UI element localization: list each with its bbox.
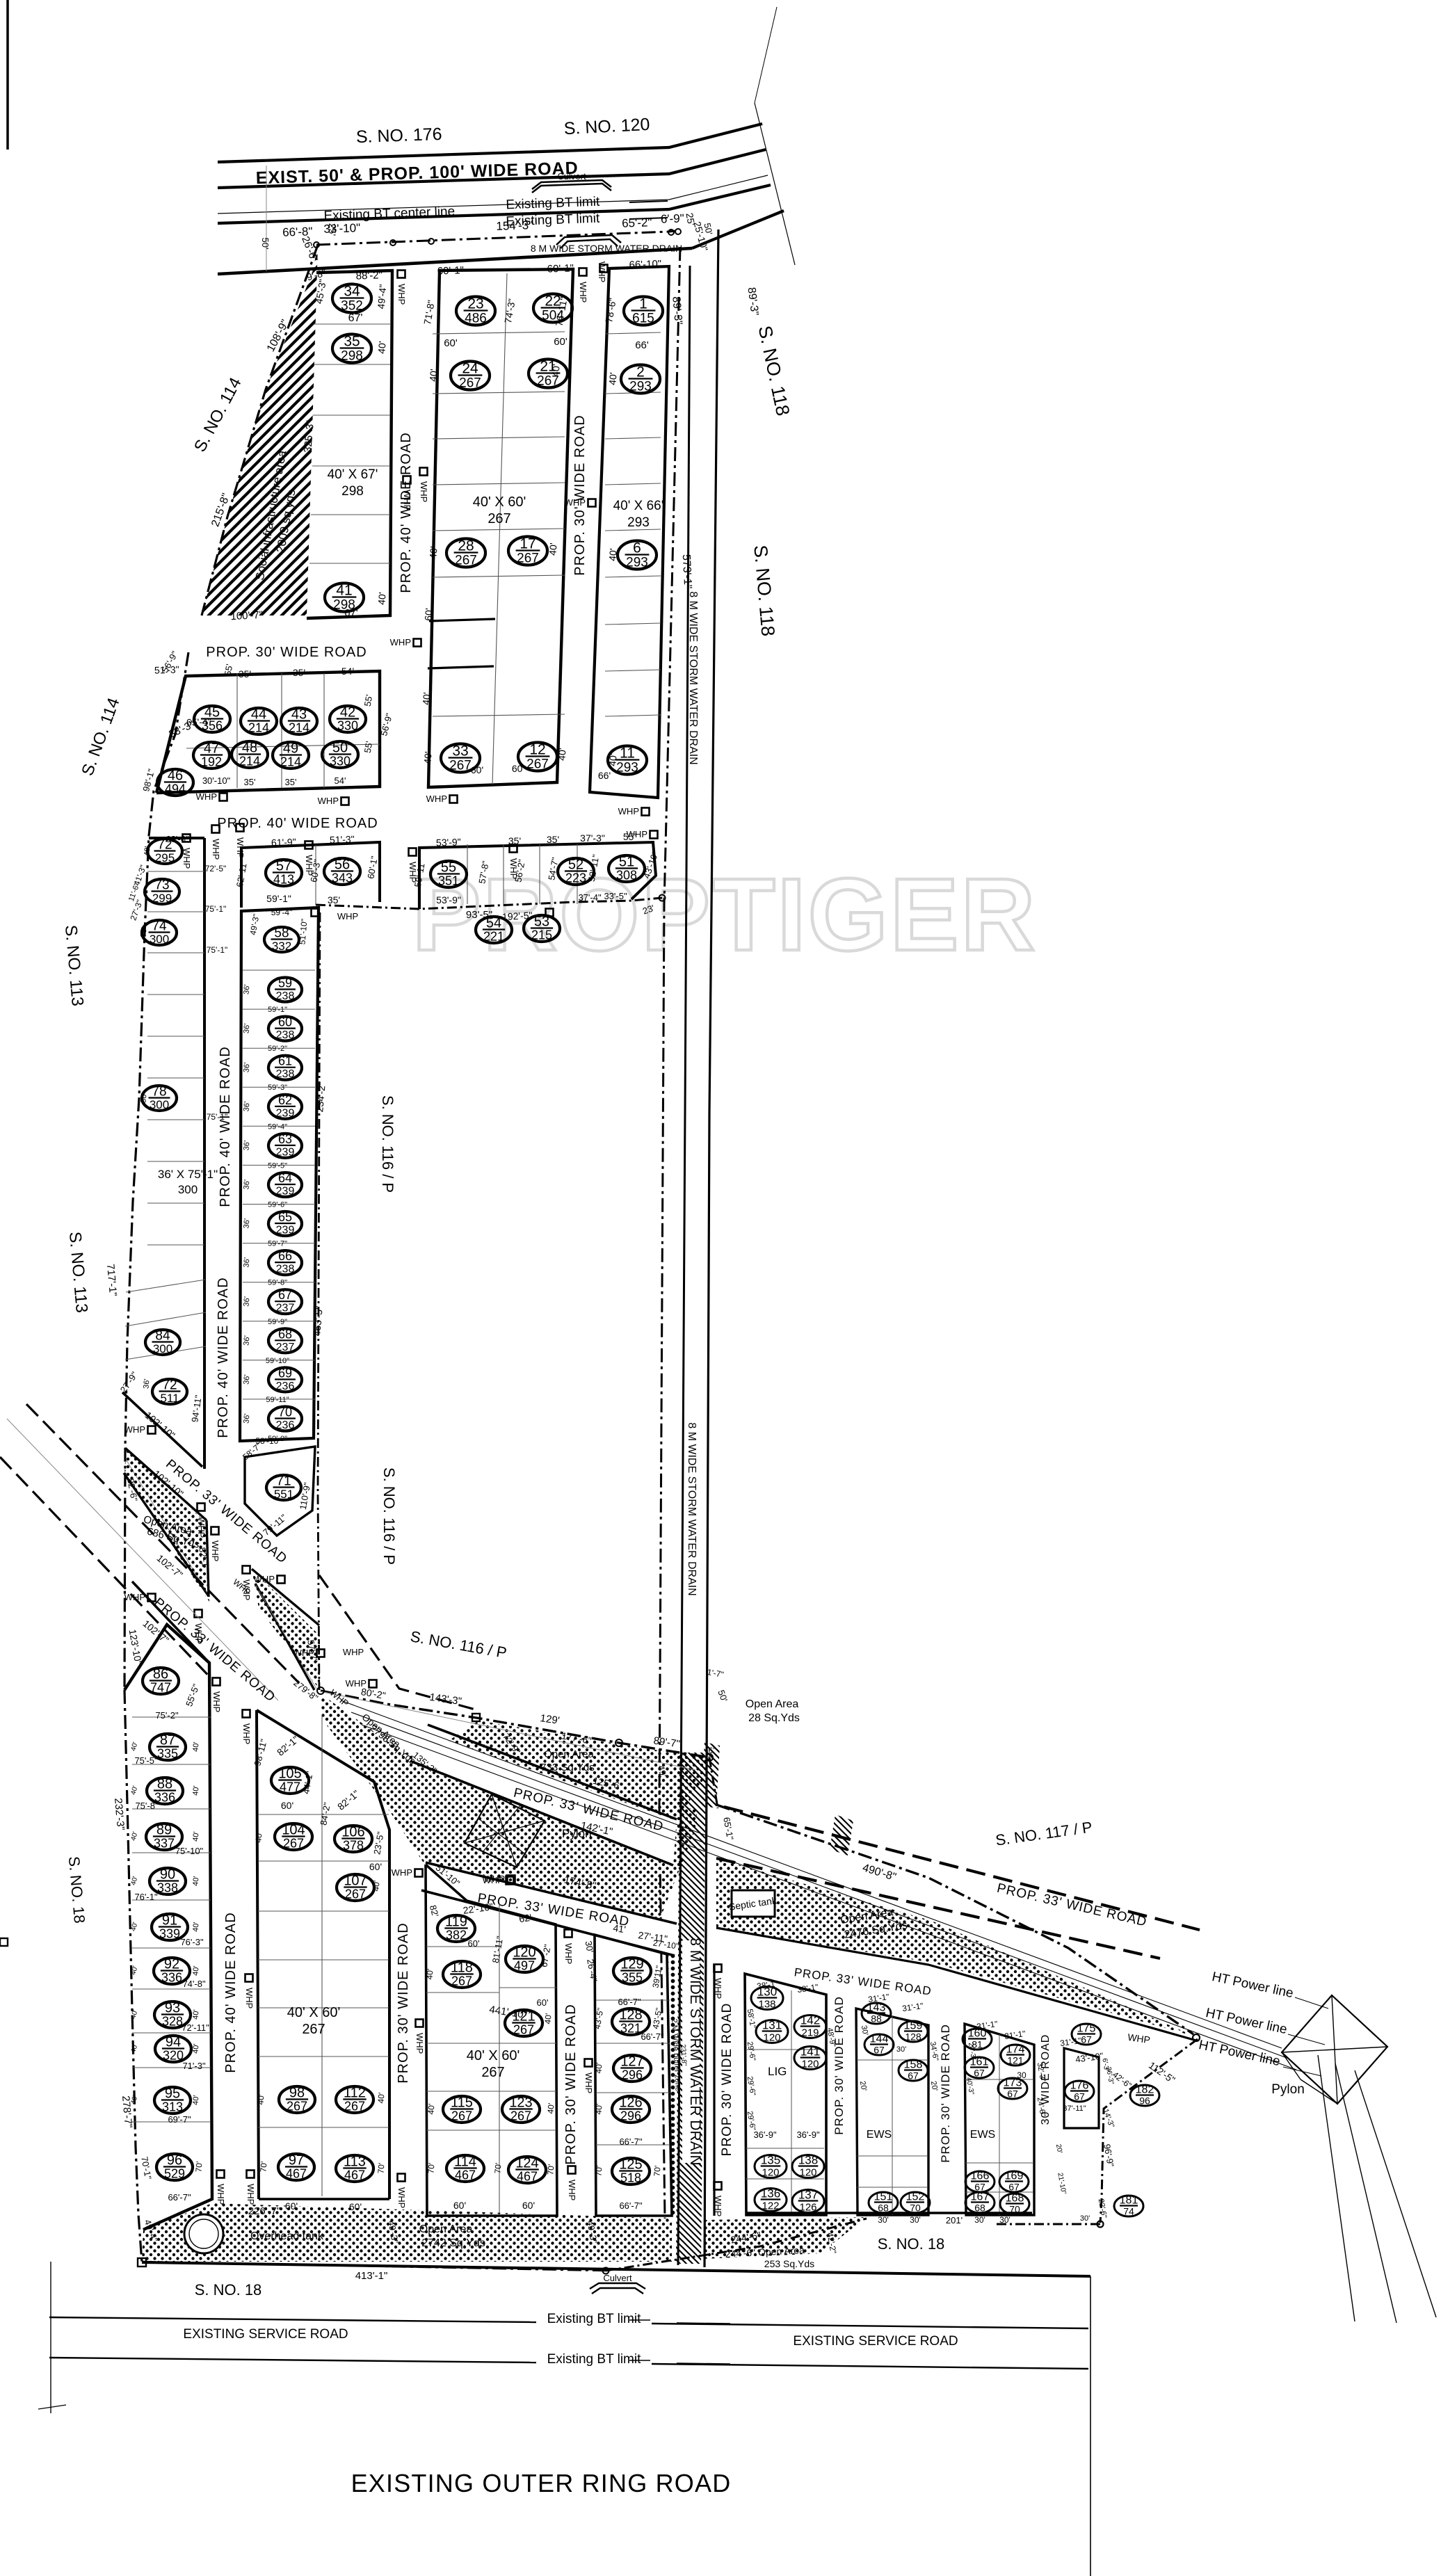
svg-text:343: 343	[332, 871, 353, 885]
svg-text:61'-9": 61'-9"	[271, 836, 296, 848]
svg-text:S. NO. 116 / P: S. NO. 116 / P	[379, 1095, 396, 1193]
svg-text:EXISTING SERVICE ROAD: EXISTING SERVICE ROAD	[183, 2327, 348, 2342]
svg-text:2: 2	[636, 364, 645, 380]
svg-text:60'-1": 60'-1"	[547, 262, 574, 275]
svg-text:123: 123	[509, 2095, 532, 2111]
svg-text:144: 144	[870, 2034, 889, 2045]
svg-text:378: 378	[343, 1839, 364, 1853]
svg-text:70': 70'	[593, 2165, 604, 2177]
svg-text:74: 74	[152, 919, 167, 934]
svg-text:40': 40'	[191, 1831, 200, 1842]
svg-text:336: 336	[161, 1971, 182, 1985]
svg-text:36': 36'	[242, 1257, 251, 1268]
svg-text:192: 192	[201, 755, 222, 769]
svg-text:84: 84	[155, 1329, 170, 1344]
svg-text:43: 43	[291, 707, 307, 723]
svg-text:120: 120	[513, 1945, 536, 1961]
svg-text:337: 337	[154, 1837, 175, 1851]
svg-text:182: 182	[1136, 2084, 1154, 2096]
svg-text:35': 35'	[239, 668, 251, 679]
svg-text:223: 223	[565, 871, 586, 885]
svg-text:55': 55'	[362, 694, 375, 707]
svg-text:192'-5": 192'-5"	[502, 910, 533, 922]
svg-text:30'-10": 30'-10"	[202, 775, 231, 786]
svg-text:40' X 60': 40' X 60'	[473, 494, 526, 510]
svg-text:40' X 66': 40' X 66'	[613, 499, 664, 513]
svg-text:51: 51	[619, 855, 634, 870]
svg-text:Culvert: Culvert	[603, 2273, 632, 2283]
svg-text:55': 55'	[223, 663, 235, 677]
svg-text:8 M WIDE STORM WATER DRAIN: 8 M WIDE STORM WATER DRAIN	[686, 1422, 698, 1595]
svg-text:267: 267	[526, 757, 549, 771]
svg-text:74: 74	[1123, 2206, 1134, 2217]
svg-text:50': 50'	[260, 238, 271, 250]
svg-text:36': 36'	[242, 1296, 251, 1307]
svg-text:Open Area: Open Area	[544, 1748, 594, 1760]
svg-text:267: 267	[451, 1974, 472, 1988]
svg-text:65: 65	[278, 1210, 292, 1224]
svg-text:71: 71	[276, 1474, 291, 1489]
svg-text:20': 20'	[1054, 2143, 1063, 2154]
svg-text:321: 321	[620, 2022, 641, 2036]
svg-text:60': 60'	[422, 608, 435, 622]
svg-text:168: 168	[1006, 2193, 1024, 2205]
svg-text:67: 67	[908, 2070, 919, 2082]
svg-text:239: 239	[276, 1225, 295, 1237]
svg-text:30': 30'	[896, 2045, 906, 2054]
svg-text:298: 298	[341, 348, 363, 363]
svg-text:159: 159	[904, 2020, 923, 2032]
svg-text:60': 60'	[444, 337, 458, 349]
svg-text:PROP. 40' WIDE ROAD: PROP. 40' WIDE ROAD	[223, 1912, 239, 2072]
svg-text:119: 119	[445, 1915, 467, 1930]
svg-text:118: 118	[451, 1961, 473, 1976]
svg-text:267: 267	[481, 2065, 504, 2080]
svg-text:WHP: WHP	[426, 794, 447, 804]
svg-text:58: 58	[274, 926, 289, 941]
svg-text:87: 87	[160, 1733, 175, 1748]
svg-text:573'-1": 573'-1"	[680, 554, 694, 589]
svg-text:236: 236	[276, 1380, 295, 1392]
svg-text:50: 50	[332, 741, 348, 756]
svg-text:236: 236	[276, 1419, 295, 1431]
svg-text:66': 66'	[635, 339, 649, 351]
svg-text:75'-5": 75'-5"	[134, 1755, 158, 1766]
svg-text:518: 518	[620, 2171, 641, 2185]
svg-text:33'-5": 33'-5"	[604, 891, 627, 901]
svg-text:267: 267	[510, 2109, 531, 2123]
svg-text:221: 221	[483, 930, 504, 944]
svg-text:59'-4": 59'-4"	[268, 1122, 287, 1131]
svg-text:330: 330	[337, 719, 358, 733]
svg-text:8 M WIDE STORM WATER DRAIN: 8 M WIDE STORM WATER DRAIN	[687, 1938, 703, 2165]
svg-text:40': 40'	[426, 2103, 436, 2115]
svg-text:238: 238	[276, 1068, 295, 1080]
svg-text:PROP. 30' WIDE ROAD: PROP. 30' WIDE ROAD	[396, 1922, 411, 2083]
svg-text:126: 126	[799, 2201, 816, 2213]
svg-text:37'-11": 37'-11"	[1063, 2104, 1086, 2113]
svg-text:142: 142	[800, 2014, 820, 2027]
svg-text:176: 176	[1070, 2080, 1089, 2092]
svg-text:382: 382	[446, 1929, 467, 1942]
svg-text:55: 55	[441, 860, 456, 876]
svg-text:497: 497	[514, 1959, 535, 1973]
svg-text:40': 40'	[191, 2009, 200, 2020]
svg-text:328: 328	[162, 2015, 183, 2029]
svg-text:67': 67'	[344, 607, 358, 619]
svg-text:60'-6": 60'-6"	[166, 834, 189, 844]
svg-text:313: 313	[162, 2100, 183, 2114]
svg-text:30': 30'	[1080, 2214, 1090, 2223]
svg-text:36': 36'	[139, 927, 148, 937]
svg-text:75'-10": 75'-10"	[175, 1846, 204, 1856]
svg-text:59'-7": 59'-7"	[268, 1240, 287, 1248]
svg-text:40': 40'	[143, 846, 152, 856]
svg-text:70: 70	[910, 2203, 921, 2214]
svg-text:201': 201'	[946, 2215, 963, 2225]
svg-text:174: 174	[1006, 2044, 1025, 2056]
svg-text:70': 70'	[376, 2162, 386, 2174]
svg-text:253 Sq.Yds: 253 Sq.Yds	[764, 2258, 814, 2269]
svg-text:60': 60'	[471, 764, 483, 775]
svg-text:53'-9": 53'-9"	[436, 894, 461, 905]
svg-text:308: 308	[616, 869, 637, 883]
svg-text:EXISTING OUTER RING ROAD: EXISTING OUTER RING ROAD	[351, 2469, 732, 2497]
svg-text:40': 40'	[191, 1785, 200, 1796]
svg-text:35: 35	[344, 334, 360, 350]
svg-text:95: 95	[165, 2086, 180, 2102]
svg-text:40': 40'	[420, 692, 433, 706]
svg-text:40': 40'	[191, 1965, 200, 1976]
svg-text:33: 33	[452, 743, 468, 759]
svg-text:131: 131	[762, 2019, 782, 2032]
svg-text:295: 295	[155, 851, 175, 864]
svg-text:40': 40'	[191, 2043, 200, 2054]
svg-text:135: 135	[761, 2154, 780, 2167]
svg-text:Open Area: Open Area	[419, 2223, 473, 2235]
svg-text:70': 70'	[492, 2162, 503, 2174]
svg-text:40': 40'	[253, 1831, 264, 1843]
svg-text:WHP: WHP	[396, 2187, 407, 2208]
svg-text:69'-7": 69'-7"	[168, 2114, 191, 2125]
svg-text:36': 36'	[242, 1101, 251, 1111]
svg-text:511: 511	[160, 1392, 179, 1405]
svg-text:6'-9": 6'-9"	[661, 211, 685, 225]
svg-text:74'-8": 74'-8"	[182, 1979, 206, 1989]
svg-text:40': 40'	[593, 2062, 604, 2074]
svg-text:330: 330	[330, 755, 351, 768]
svg-text:WHP: WHP	[293, 1648, 314, 1658]
svg-text:WHP: WHP	[211, 839, 221, 860]
svg-text:298: 298	[341, 484, 364, 499]
svg-text:S. NO. 176: S. NO. 176	[355, 124, 442, 147]
svg-text:59'-6": 59'-6"	[268, 1201, 287, 1209]
svg-text:60': 60'	[522, 2200, 535, 2211]
svg-text:219: 219	[801, 2027, 819, 2038]
svg-text:36'-9": 36'-9"	[753, 2130, 777, 2140]
svg-text:WHP: WHP	[210, 1540, 220, 1561]
svg-text:65'-2": 65'-2"	[622, 216, 652, 230]
svg-text:296: 296	[620, 2109, 641, 2123]
svg-text:59'-1": 59'-1"	[266, 893, 291, 904]
svg-text:30': 30'	[860, 2024, 869, 2036]
svg-text:WHP: WHP	[211, 1691, 222, 1712]
svg-text:66: 66	[278, 1249, 292, 1263]
svg-text:66'-7": 66'-7"	[168, 2192, 191, 2203]
svg-text:40': 40'	[191, 1922, 200, 1932]
svg-text:40' X 60': 40' X 60'	[467, 2048, 520, 2063]
svg-text:60'-1": 60'-1"	[437, 264, 464, 277]
svg-text:296: 296	[622, 2068, 643, 2082]
svg-text:67': 67'	[348, 312, 363, 324]
svg-text:293: 293	[616, 760, 638, 775]
svg-text:76'-1": 76'-1"	[134, 1892, 158, 1902]
svg-text:237: 237	[276, 1342, 295, 1353]
svg-text:PROP. 30' WIDE ROAD: PROP. 30' WIDE ROAD	[832, 1996, 846, 2135]
svg-text:70': 70'	[545, 2164, 556, 2175]
svg-text:Open Area: Open Area	[746, 1698, 799, 1710]
svg-text:47: 47	[204, 741, 219, 757]
svg-text:64: 64	[278, 1171, 292, 1185]
svg-text:300: 300	[150, 933, 169, 946]
svg-text:PROP. 30' WIDE ROAD: PROP. 30' WIDE ROAD	[939, 2024, 952, 2163]
svg-text:267: 267	[488, 511, 510, 526]
svg-text:11: 11	[620, 746, 635, 762]
svg-text:40': 40'	[427, 369, 440, 383]
svg-text:114: 114	[454, 2155, 476, 2170]
svg-text:72'-5": 72'-5"	[205, 864, 227, 874]
svg-text:355: 355	[622, 1971, 643, 1985]
svg-text:60': 60'	[281, 1800, 293, 1811]
svg-text:36': 36'	[242, 1413, 251, 1424]
svg-text:551: 551	[274, 1488, 293, 1501]
svg-text:106: 106	[341, 1825, 364, 1840]
svg-text:WHP: WHP	[196, 791, 217, 802]
svg-text:467: 467	[517, 2170, 538, 2184]
svg-text:42: 42	[340, 705, 355, 721]
svg-text:78: 78	[152, 1085, 166, 1100]
svg-text:167: 167	[971, 2191, 990, 2203]
svg-text:59'-9": 59'-9"	[268, 1318, 287, 1326]
svg-text:WHP: WHP	[713, 2196, 723, 2216]
svg-text:128: 128	[905, 2031, 921, 2043]
svg-text:300: 300	[150, 1098, 169, 1111]
svg-text:35': 35'	[328, 894, 340, 905]
svg-text:53'-9": 53'-9"	[436, 836, 461, 848]
svg-text:WHP: WHP	[235, 837, 245, 858]
svg-text:WHP: WHP	[713, 1978, 723, 1999]
svg-text:41': 41'	[613, 1922, 627, 1935]
svg-text:Overhead tank: Overhead tank	[250, 2230, 324, 2242]
svg-text:122: 122	[762, 2200, 779, 2212]
svg-text:28: 28	[458, 538, 474, 554]
svg-text:49: 49	[283, 741, 298, 757]
svg-text:62': 62'	[518, 1912, 532, 1924]
svg-text:PROP. 40' WIDE ROAD: PROP. 40' WIDE ROAD	[218, 1046, 233, 1207]
svg-text:238: 238	[276, 990, 295, 1002]
svg-text:239: 239	[276, 1146, 295, 1158]
svg-text:267: 267	[287, 2100, 307, 2114]
svg-text:166: 166	[971, 2171, 990, 2182]
svg-text:113: 113	[344, 2155, 366, 2170]
svg-text:124: 124	[515, 2156, 538, 2171]
svg-text:238: 238	[276, 1029, 295, 1041]
svg-text:WHP: WHP	[318, 796, 339, 806]
svg-text:68: 68	[974, 2203, 985, 2214]
svg-text:293: 293	[626, 555, 648, 570]
svg-text:S. NO. 18: S. NO. 18	[195, 2281, 262, 2299]
svg-text:231'-8": 231'-8"	[679, 2044, 688, 2066]
svg-text:49'-4": 49'-4"	[375, 284, 388, 309]
svg-text:121: 121	[512, 2009, 535, 2024]
svg-text:63: 63	[278, 1132, 292, 1146]
svg-text:WHP: WHP	[124, 1424, 145, 1435]
svg-text:40': 40'	[191, 1876, 200, 1886]
svg-text:98: 98	[289, 2086, 305, 2101]
svg-text:40': 40'	[606, 753, 619, 767]
svg-text:WHP: WHP	[618, 806, 639, 816]
svg-text:40': 40'	[542, 2013, 553, 2024]
svg-text:40' X 60': 40' X 60'	[287, 2005, 341, 2020]
svg-text:129: 129	[620, 1957, 643, 1972]
svg-text:267: 267	[283, 1837, 304, 1851]
svg-text:8 M WIDE STORM WATER DRAIN: 8 M WIDE STORM WATER DRAIN	[687, 591, 699, 764]
svg-text:86: 86	[153, 1667, 168, 1682]
svg-text:115: 115	[451, 2095, 473, 2111]
svg-text:LIG: LIG	[768, 2065, 787, 2078]
svg-text:69: 69	[278, 1366, 292, 1380]
svg-text:89'-3": 89'-3"	[670, 296, 684, 325]
svg-text:36': 36'	[139, 1093, 148, 1103]
svg-text:60': 60'	[554, 336, 567, 348]
svg-text:48: 48	[242, 741, 257, 756]
svg-text:40': 40'	[255, 2093, 266, 2105]
svg-text:141: 141	[800, 2045, 820, 2059]
svg-text:23: 23	[467, 296, 483, 312]
svg-text:40': 40'	[371, 1880, 381, 1892]
svg-text:120: 120	[763, 2031, 780, 2043]
svg-text:59'-5": 59'-5"	[268, 1161, 287, 1170]
svg-text:PROP. 40' WIDE ROAD: PROP. 40' WIDE ROAD	[399, 432, 414, 593]
svg-text:56: 56	[335, 858, 350, 873]
svg-text:112: 112	[344, 2086, 366, 2101]
svg-text:267: 267	[344, 2100, 365, 2114]
svg-text:36': 36'	[242, 1374, 251, 1385]
svg-text:Existing BT limit: Existing BT limit	[547, 2352, 642, 2367]
svg-text:338: 338	[157, 1881, 178, 1895]
svg-text:60': 60'	[453, 2200, 466, 2211]
svg-text:76'-3": 76'-3"	[180, 1937, 204, 1947]
svg-text:37'-3": 37'-3"	[580, 832, 605, 844]
svg-text:60': 60'	[369, 1861, 382, 1872]
svg-text:320: 320	[163, 2049, 184, 2063]
svg-text:Existing BT limit: Existing BT limit	[547, 2312, 642, 2326]
svg-text:151: 151	[874, 2191, 893, 2203]
svg-text:54': 54'	[335, 775, 346, 786]
svg-text:34: 34	[344, 284, 360, 300]
svg-text:60: 60	[278, 1015, 292, 1029]
svg-text:WHP: WHP	[392, 1867, 412, 1878]
svg-text:12: 12	[529, 742, 545, 758]
svg-text:60': 60'	[537, 1997, 549, 2008]
svg-text:121: 121	[1007, 2055, 1024, 2066]
svg-text:EXISTING SERVICE ROAD: EXISTING SERVICE ROAD	[793, 2334, 958, 2349]
svg-text:36': 36'	[242, 1180, 251, 1190]
svg-text:136: 136	[761, 2187, 780, 2200]
svg-text:40': 40'	[545, 2102, 556, 2114]
svg-text:90: 90	[160, 1867, 175, 1883]
svg-text:20': 20'	[929, 2080, 939, 2091]
svg-text:138: 138	[758, 1998, 775, 2010]
svg-text:75'-1": 75'-1"	[207, 945, 228, 955]
svg-text:40': 40'	[549, 364, 562, 378]
svg-text:40': 40'	[424, 1968, 435, 1980]
svg-text:293: 293	[629, 379, 652, 394]
svg-text:70': 70'	[258, 2161, 268, 2173]
svg-text:WHP: WHP	[578, 282, 588, 303]
svg-text:PROP. 30' WIDE ROAD: PROP. 30' WIDE ROAD	[206, 645, 367, 660]
svg-text:PROP. 40' WIDE ROAD: PROP. 40' WIDE ROAD	[216, 1277, 231, 1438]
svg-text:127: 127	[620, 2054, 643, 2070]
svg-text:59'-3": 59'-3"	[268, 1084, 287, 1092]
svg-text:214: 214	[280, 755, 301, 769]
svg-text:8 M WIDE STORM WATER DRAIN: 8 M WIDE STORM WATER DRAIN	[531, 243, 682, 254]
svg-text:PROP. 30' WIDE ROAD: PROP. 30' WIDE ROAD	[720, 2003, 734, 2157]
svg-text:733 Sq.Yds: 733 Sq.Yds	[540, 1762, 595, 1773]
svg-text:66'-7": 66'-7"	[618, 1997, 641, 2007]
svg-text:WHP: WHP	[508, 858, 519, 879]
svg-text:40': 40'	[547, 542, 559, 556]
svg-text:WHP: WHP	[396, 284, 407, 305]
svg-text:35': 35'	[285, 777, 297, 787]
svg-text:66'-7": 66'-7"	[641, 2031, 664, 2042]
svg-text:104: 104	[282, 1823, 305, 1838]
svg-text:88: 88	[157, 1777, 172, 1792]
svg-text:181: 181	[1120, 2195, 1138, 2207]
svg-text:494: 494	[165, 782, 186, 796]
svg-text:WHP: WHP	[563, 1943, 574, 1964]
svg-text:35': 35'	[244, 777, 256, 787]
svg-text:30': 30'	[974, 2215, 985, 2225]
svg-text:238: 238	[276, 1264, 295, 1275]
svg-text:67: 67	[1007, 2088, 1018, 2100]
svg-text:40': 40'	[376, 592, 388, 606]
svg-text:40': 40'	[593, 2103, 604, 2115]
svg-text:36': 36'	[142, 1378, 151, 1389]
svg-text:529: 529	[164, 2167, 185, 2181]
svg-text:S. NO. 18: S. NO. 18	[878, 2235, 945, 2253]
svg-text:40' X 67': 40' X 67'	[328, 467, 378, 482]
svg-text:66': 66'	[598, 770, 611, 781]
svg-text:40': 40'	[606, 372, 619, 386]
svg-text:WHP: WHP	[241, 1723, 252, 1744]
svg-text:40': 40'	[191, 1741, 200, 1752]
svg-text:57: 57	[276, 859, 291, 874]
svg-text:40': 40'	[606, 548, 619, 562]
svg-text:59'-10": 59'-10"	[266, 1357, 289, 1365]
svg-text:WHP: WHP	[419, 481, 429, 502]
svg-text:75'-8": 75'-8"	[135, 1801, 159, 1811]
svg-text:20': 20'	[858, 2080, 868, 2091]
svg-text:61: 61	[278, 1054, 292, 1068]
svg-text:70': 70'	[652, 2165, 662, 2177]
svg-text:WHP: WHP	[408, 862, 418, 883]
svg-text:125: 125	[619, 2157, 642, 2173]
svg-text:WHP: WHP	[414, 2033, 425, 2054]
svg-text:Culvert: Culvert	[557, 171, 586, 182]
svg-text:72: 72	[162, 1378, 177, 1393]
svg-text:92: 92	[164, 1957, 179, 1972]
